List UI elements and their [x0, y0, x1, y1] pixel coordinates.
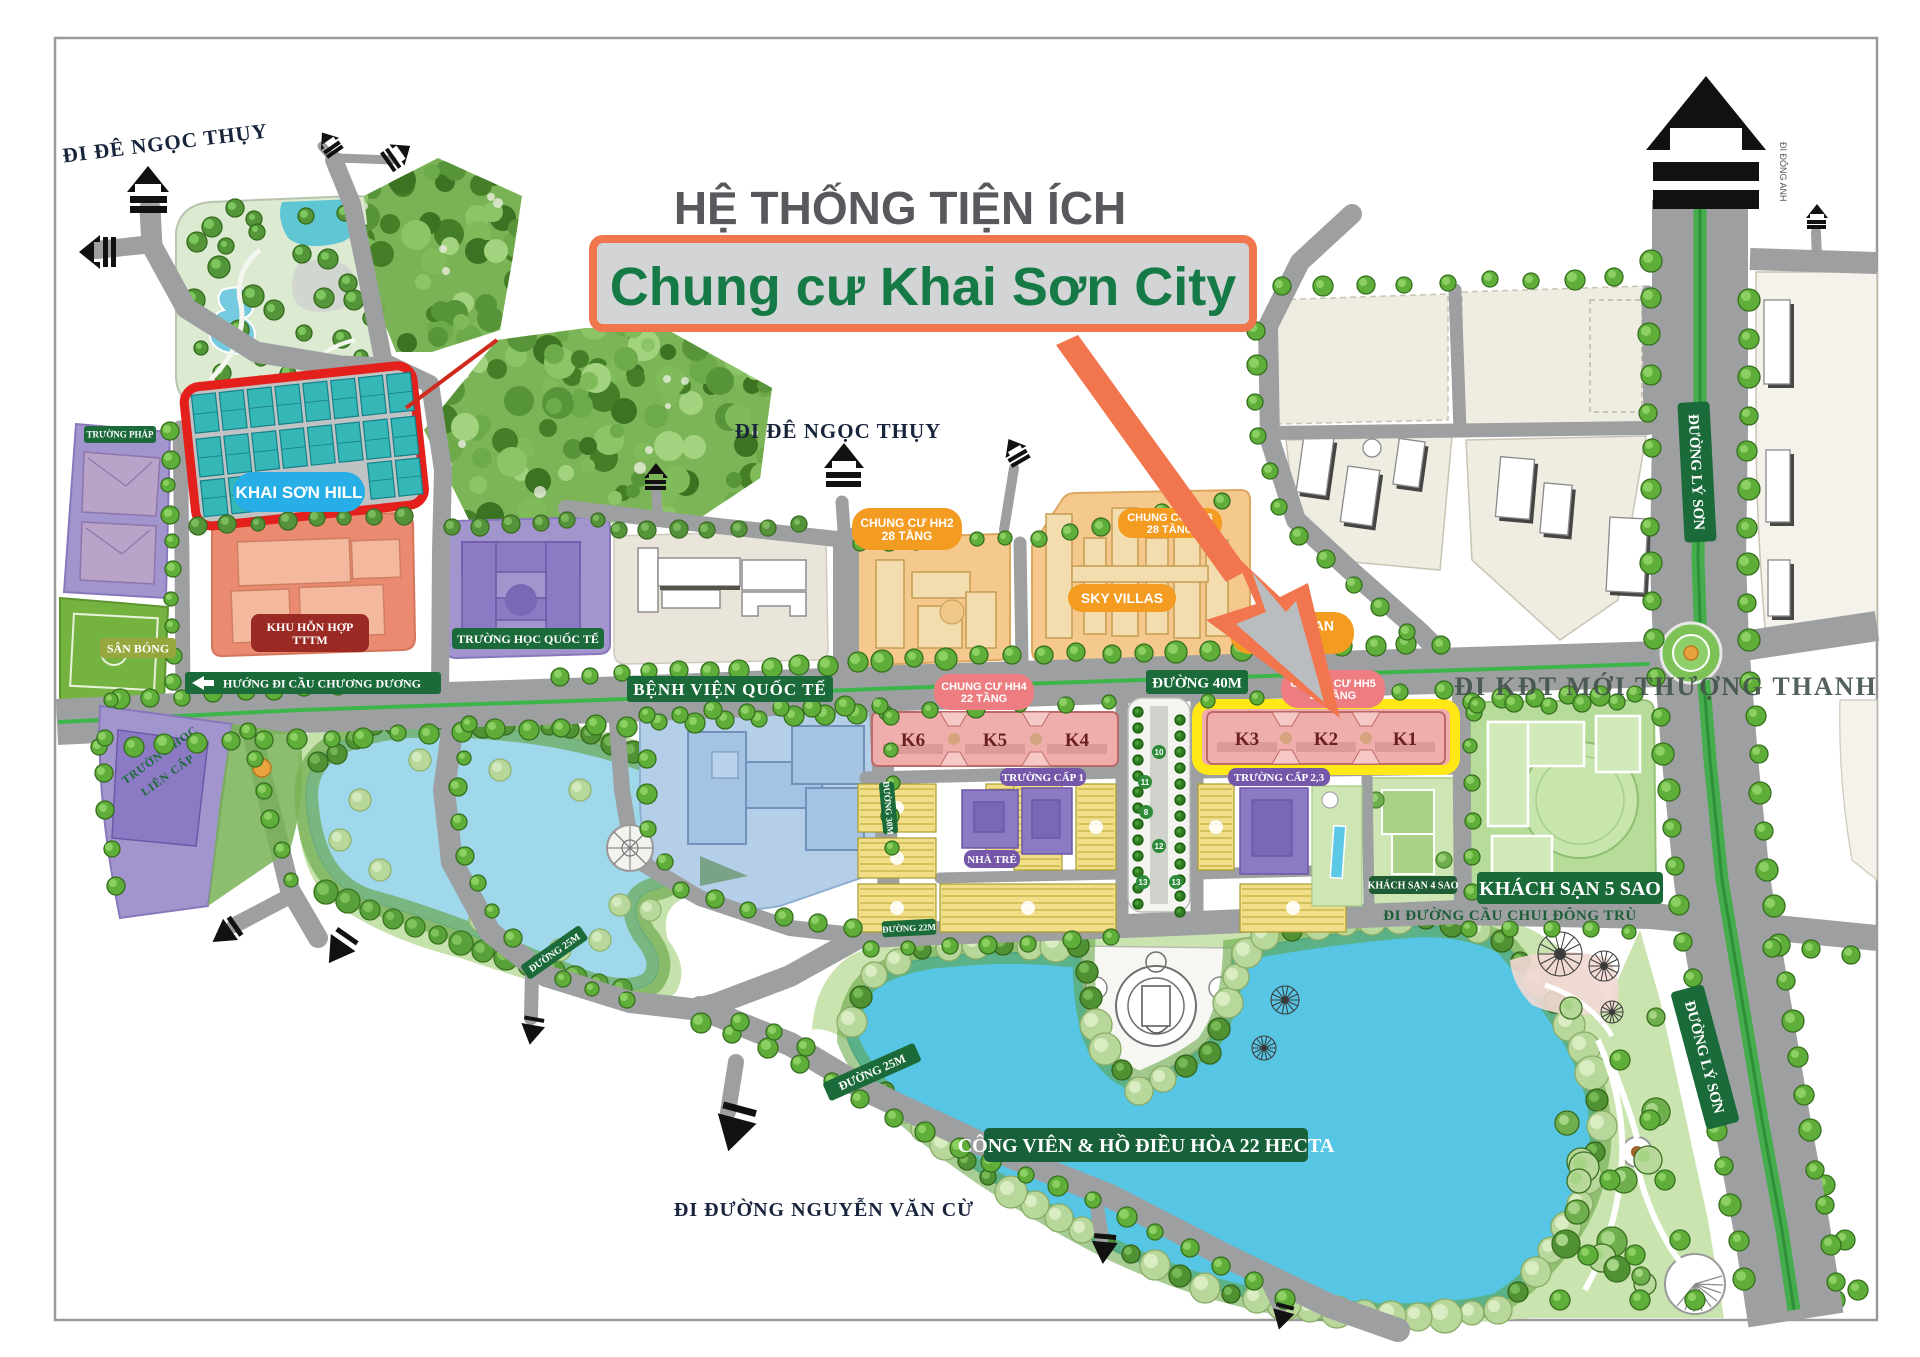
svg-text:ĐI ĐÔNG ANH: ĐI ĐÔNG ANH — [1778, 142, 1788, 202]
svg-text:CHUNG CƯ HH4: CHUNG CƯ HH4 — [941, 681, 1027, 693]
svg-text:ĐI ĐƯỜNG CẦU CHUI ĐÔNG TRÙ: ĐI ĐƯỜNG CẦU CHUI ĐÔNG TRÙ — [1383, 907, 1636, 924]
svg-text:12: 12 — [1155, 842, 1164, 851]
svg-text:KHÁCH SẠN 4 SAO: KHÁCH SẠN 4 SAO — [1368, 880, 1459, 892]
svg-text:CHUNG CƯ HH2: CHUNG CƯ HH2 — [860, 516, 954, 530]
svg-text:K6: K6 — [901, 730, 925, 751]
svg-text:13: 13 — [1139, 878, 1148, 887]
svg-text:11: 11 — [1141, 778, 1150, 787]
svg-text:HƯỚNG ĐI CẦU CHƯƠNG DƯƠNG: HƯỚNG ĐI CẦU CHƯƠNG DƯƠNG — [205, 675, 421, 690]
svg-text:SÂN BÓNG: SÂN BÓNG — [107, 641, 169, 655]
svg-text:CÔNG VIÊN & HỒ ĐIỀU HÒA 22 HEC: CÔNG VIÊN & HỒ ĐIỀU HÒA 22 HECTA — [958, 1133, 1335, 1157]
svg-text:KHÁCH SẠN 5 SAO: KHÁCH SẠN 5 SAO — [1479, 877, 1661, 900]
svg-text:SKY VILLAS: SKY VILLAS — [1081, 590, 1163, 606]
svg-text:Chung cư Khai Sơn City: Chung cư Khai Sơn City — [610, 257, 1237, 317]
svg-text:TRƯỜNG PHÁP: TRƯỜNG PHÁP — [87, 430, 154, 440]
svg-text:KHAI SƠN HILL: KHAI SƠN HILL — [236, 483, 363, 502]
svg-text:ĐƯỜNG 40M: ĐƯỜNG 40M — [1152, 674, 1242, 691]
svg-text:K1: K1 — [1393, 729, 1417, 750]
svg-text:ĐI KĐT MỚI THƯỢNG THANH: ĐI KĐT MỚI THƯỢNG THANH — [1454, 672, 1878, 701]
svg-text:NHÀ TRẺ: NHÀ TRẺ — [967, 854, 1017, 866]
svg-text:13: 13 — [1172, 878, 1181, 887]
svg-text:K2: K2 — [1314, 729, 1338, 750]
svg-text:ĐI ĐƯỜNG NGUYỄN VĂN CỪ: ĐI ĐƯỜNG NGUYỄN VĂN CỪ — [674, 1196, 974, 1221]
svg-text:ĐI ĐÊ NGỌC THỤY: ĐI ĐÊ NGỌC THỤY — [735, 419, 942, 443]
svg-text:HỆ THỐNG TIỆN ÍCH: HỆ THỐNG TIỆN ÍCH — [674, 182, 1126, 234]
svg-text:BỆNH VIỆN QUỐC TẾ: BỆNH VIỆN QUỐC TẾ — [633, 679, 827, 699]
svg-text:TRƯỜNG CẤP 2,3: TRƯỜNG CẤP 2,3 — [1234, 771, 1325, 784]
svg-text:10: 10 — [1155, 748, 1164, 757]
svg-text:K3: K3 — [1235, 729, 1259, 750]
svg-text:28 TẦNG: 28 TẦNG — [882, 528, 933, 543]
svg-text:22 TẦNG: 22 TẦNG — [961, 692, 1007, 705]
svg-text:K4: K4 — [1065, 730, 1090, 751]
svg-text:KHU HỖN HỢP: KHU HỖN HỢP — [267, 619, 354, 634]
svg-text:TRƯỜNG CẤP 1: TRƯỜNG CẤP 1 — [1002, 771, 1084, 784]
svg-text:TTTM: TTTM — [292, 633, 327, 647]
svg-text:TRƯỜNG HỌC QUỐC TẾ: TRƯỜNG HỌC QUỐC TẾ — [457, 631, 599, 646]
svg-text:K5: K5 — [983, 730, 1007, 751]
svg-text:8: 8 — [1144, 808, 1149, 817]
